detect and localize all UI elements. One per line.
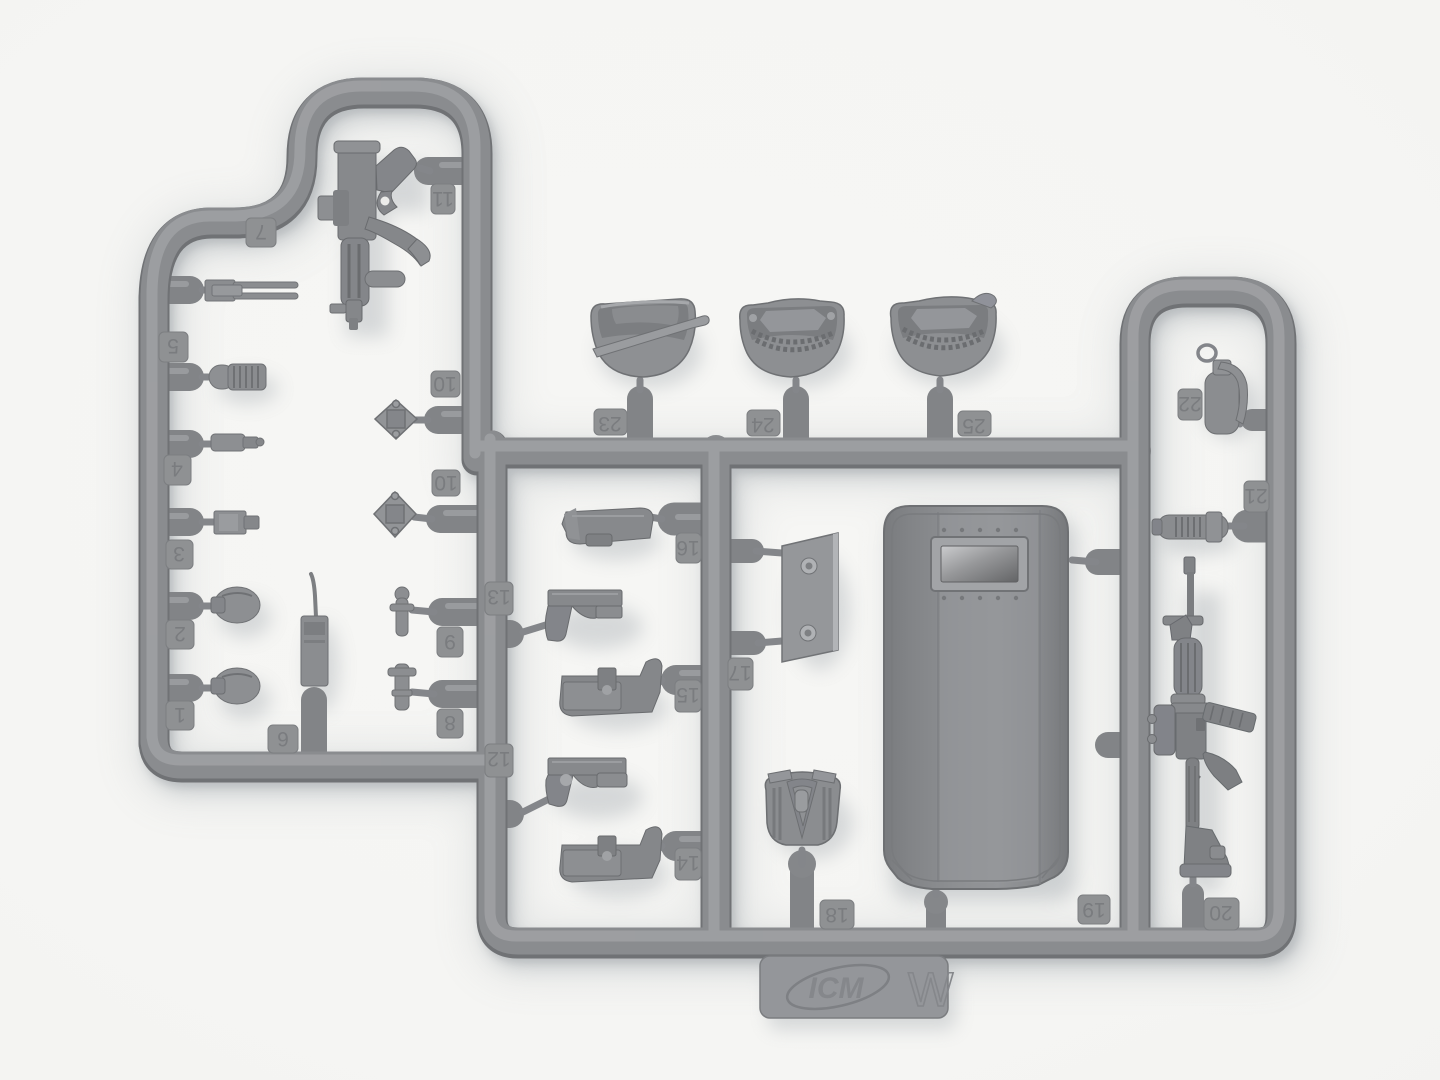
svg-text:20: 20 [1209, 901, 1232, 924]
svg-text:11: 11 [432, 187, 454, 210]
svg-text:15: 15 [676, 683, 699, 706]
svg-text:ICM: ICM [809, 972, 865, 1005]
svg-text:16: 16 [676, 536, 699, 559]
svg-text:12: 12 [487, 747, 510, 770]
svg-text:4: 4 [171, 457, 183, 480]
svg-text:5: 5 [167, 334, 179, 357]
svg-text:13: 13 [487, 585, 510, 608]
svg-text:10: 10 [434, 471, 457, 494]
svg-text:3: 3 [173, 542, 185, 565]
svg-text:14: 14 [676, 851, 700, 874]
svg-text:10: 10 [433, 372, 456, 395]
svg-text:8: 8 [444, 711, 456, 734]
svg-text:22: 22 [1178, 392, 1201, 415]
svg-text:9: 9 [444, 630, 456, 653]
svg-text:1: 1 [174, 703, 186, 726]
svg-text:23: 23 [598, 412, 621, 435]
svg-text:17: 17 [728, 661, 751, 684]
svg-text:W: W [908, 964, 954, 1017]
svg-text:24: 24 [751, 413, 775, 436]
svg-text:25: 25 [962, 414, 985, 437]
svg-text:18: 18 [825, 903, 848, 926]
svg-text:6: 6 [277, 727, 289, 750]
svg-text:2: 2 [174, 622, 186, 645]
svg-text:21: 21 [1244, 484, 1267, 507]
svg-text:7: 7 [255, 220, 267, 243]
svg-text:19: 19 [1082, 898, 1105, 921]
